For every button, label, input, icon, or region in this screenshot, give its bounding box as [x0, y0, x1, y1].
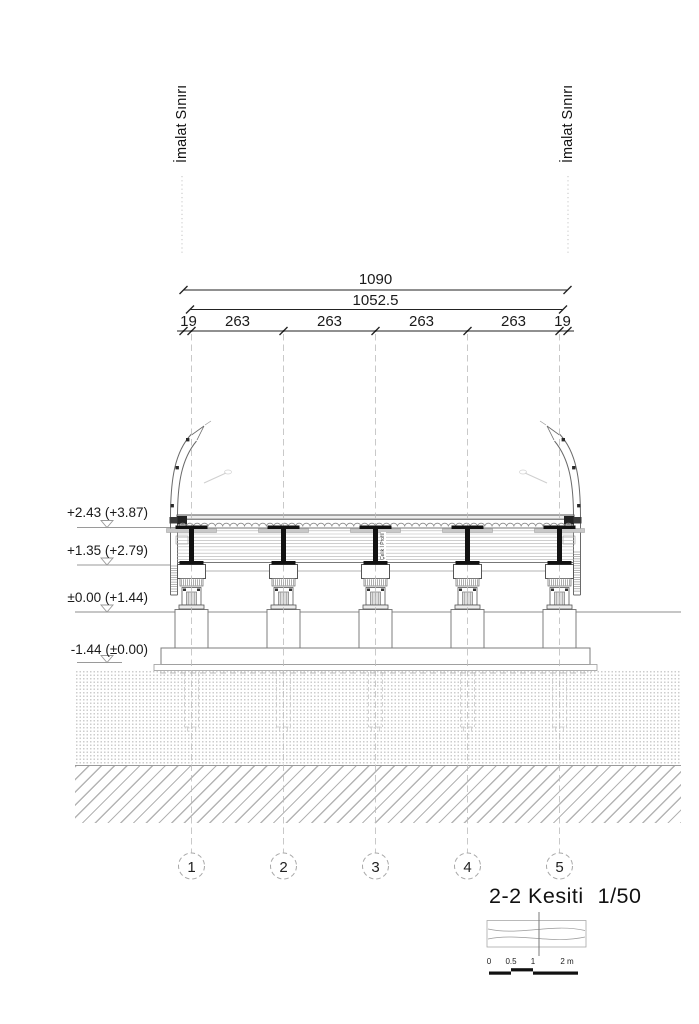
fabrication-limit-label-right: İmalat Sınırı — [560, 85, 576, 163]
dim-tick-dot — [567, 330, 569, 332]
steel-web — [373, 529, 378, 562]
bearing-bolt — [473, 589, 476, 592]
drawing-canvas: İmalat Sınırı İmalat Sınırı 1090 1052.5 … — [0, 0, 699, 1024]
bearing-bolt — [565, 589, 568, 592]
scale-bar — [489, 968, 578, 975]
axis-assembly — [259, 334, 309, 879]
steel-web — [557, 529, 562, 562]
dim-seg-0: 19 — [169, 313, 209, 330]
elevation-label-0: +2.43 (+3.87) — [38, 505, 148, 520]
fabrication-limit-label-left: İmalat Sınırı — [174, 85, 190, 163]
bearing-bolt — [289, 589, 292, 592]
dim-inner: 1052.5 — [335, 292, 416, 309]
drawing-title: 2-2 Kesiti1/50 — [489, 884, 641, 909]
axis-assembly — [443, 334, 493, 879]
elevation-label-2: ±0.00 (+1.44) — [38, 590, 148, 605]
elevation-label-3: -1.44 (±0.00) — [38, 642, 148, 657]
bearing-bolt — [197, 589, 200, 592]
dim-tick-dot — [375, 330, 377, 332]
dim-seg-3: 263 — [402, 313, 442, 330]
dim-tick-dot — [283, 330, 285, 332]
steel-top-flange — [176, 526, 208, 530]
steel-bottom-flange — [456, 561, 480, 565]
scalebar-end-label: 2 m — [552, 957, 582, 966]
axis-bubble-label-1: 1 — [179, 859, 205, 876]
steel-web — [465, 529, 470, 562]
bearing-bolt — [551, 589, 554, 592]
bearing-bolt — [183, 589, 186, 592]
dim-seg-4: 263 — [494, 313, 534, 330]
dim-tick-dot — [559, 330, 561, 332]
steel-bottom-flange — [272, 561, 296, 565]
steel-bottom-flange — [180, 561, 204, 565]
axis-assembly — [351, 334, 401, 879]
steel-web — [281, 529, 286, 562]
axis-bubble-label-5: 5 — [547, 859, 573, 876]
axis-bubble-label-4: 4 — [455, 859, 481, 876]
axis-assembly — [535, 334, 585, 879]
steel-top-flange — [452, 526, 484, 530]
dim-tick-dot — [191, 330, 193, 332]
drawing-title-text: 2-2 Kesiti — [489, 884, 584, 908]
axis-assembly — [167, 334, 217, 879]
steel-web — [189, 529, 194, 562]
bearing-bolt — [381, 589, 384, 592]
scalebar-tick-1: 1 — [518, 957, 548, 966]
bearing-bolt — [275, 589, 278, 592]
axis-bubble-label-2: 2 — [271, 859, 297, 876]
dim-seg-2: 263 — [310, 313, 350, 330]
drawing-scale-text: 1/50 — [598, 884, 642, 908]
steel-top-flange — [268, 526, 300, 530]
axis-bubble-label-3: 3 — [363, 859, 389, 876]
dim-total: 1090 — [340, 271, 411, 288]
bearing-bolt — [459, 589, 462, 592]
elevation-label-1: +1.35 (+2.79) — [38, 543, 148, 558]
steel-top-flange — [360, 526, 392, 530]
dim-tick-dot — [183, 330, 185, 332]
steel-top-flange — [544, 526, 576, 530]
key-plan — [487, 912, 586, 956]
steel-bottom-flange — [548, 561, 572, 565]
dim-seg-5: 19 — [543, 313, 583, 330]
steel-profile-label: Çelik I Profil — [381, 532, 386, 561]
bearing-bolt — [367, 589, 370, 592]
dim-seg-1: 263 — [218, 313, 258, 330]
dim-tick-dot — [467, 330, 469, 332]
steel-bottom-flange — [364, 561, 388, 565]
